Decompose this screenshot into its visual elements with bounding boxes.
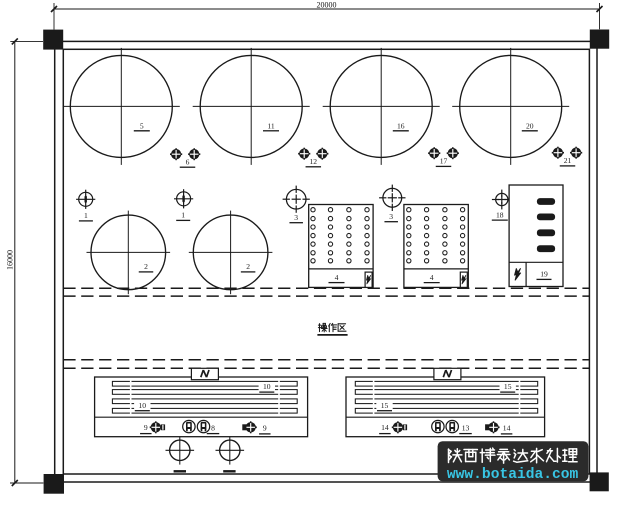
svg-text:14: 14: [381, 423, 389, 432]
svg-text:14: 14: [503, 424, 511, 433]
svg-text:10: 10: [263, 382, 271, 391]
svg-text:20: 20: [526, 121, 534, 130]
svg-text:16000: 16000: [6, 250, 15, 270]
svg-text:21: 21: [564, 156, 572, 165]
svg-text:4: 4: [335, 273, 339, 282]
svg-text:15: 15: [381, 401, 389, 410]
svg-text:12: 12: [310, 157, 318, 166]
svg-text:6: 6: [186, 157, 190, 166]
svg-text:18: 18: [496, 210, 504, 219]
svg-text:3: 3: [294, 213, 298, 222]
svg-text:9: 9: [263, 424, 267, 433]
svg-text:5: 5: [140, 121, 144, 130]
svg-text:8: 8: [211, 423, 215, 432]
svg-text:9: 9: [144, 423, 148, 432]
svg-text:15: 15: [504, 382, 512, 391]
svg-text:17: 17: [440, 157, 448, 166]
svg-text:4: 4: [430, 273, 434, 282]
svg-text:19: 19: [540, 270, 548, 279]
svg-text:2: 2: [246, 262, 250, 271]
svg-text:2: 2: [144, 262, 148, 271]
svg-text:16: 16: [397, 121, 405, 130]
svg-text:10: 10: [139, 401, 147, 410]
svg-text:20000: 20000: [317, 0, 337, 9]
svg-text:1: 1: [181, 211, 185, 220]
svg-text:11: 11: [267, 121, 275, 130]
svg-text:13: 13: [462, 423, 470, 432]
svg-text:www.botaida.com: www.botaida.com: [447, 467, 579, 483]
svg-text:1: 1: [84, 211, 88, 220]
svg-text:3: 3: [389, 212, 393, 221]
